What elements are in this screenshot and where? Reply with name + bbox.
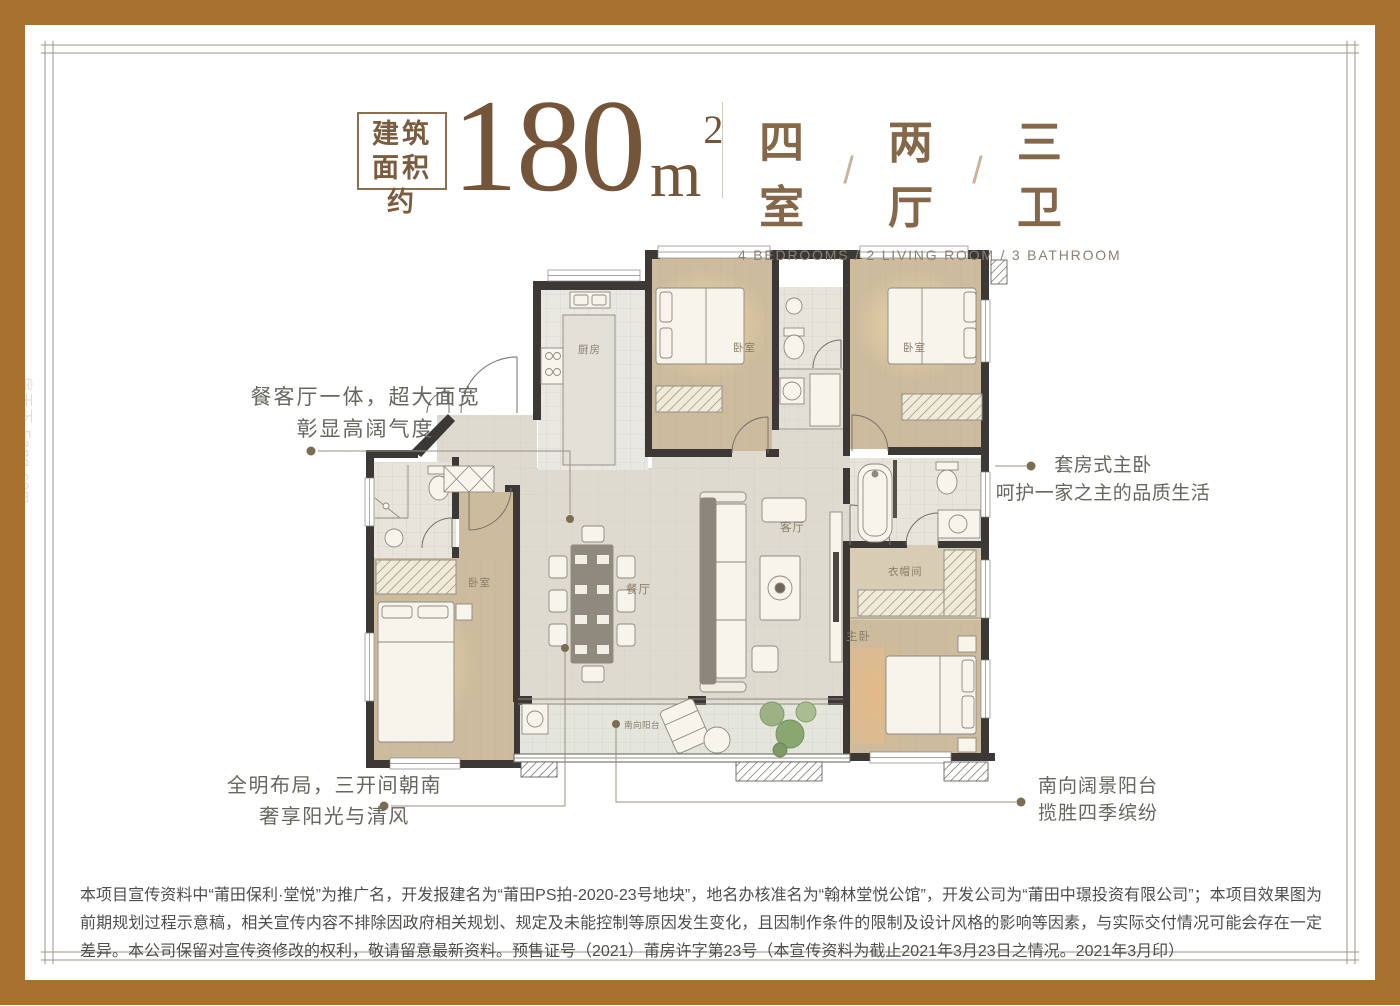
separator: / [830, 150, 867, 193]
annotation-line: 彰显高阔气度 [208, 414, 523, 446]
annotation-line: 呵护一家之主的品质生活 [993, 480, 1213, 508]
label-bedroom: 卧室 [733, 341, 756, 354]
label-master-bedroom: 主卧 [846, 630, 871, 643]
area-unit-sup: 2 [703, 110, 723, 150]
floorplan-drawing: 厨房 卧室 卧室 卧室 餐厅 客厅 衣帽间 主卧 南向阳台 [307, 246, 1036, 811]
annotation-line: 揽胜四季缤纷 [1038, 800, 1208, 827]
annotation-line: 套房式主卧 [993, 452, 1213, 480]
annotation-line: 南向阔景阳台 [1038, 773, 1208, 800]
room-summary-cn: 四室 / 两厅 / 三卫 [738, 106, 1088, 236]
room-summary-en: 4 BEDROOMS / 2 LIVING ROOM / 3 BATHROOM [738, 247, 1088, 263]
label-bedroom: 卧室 [903, 341, 926, 354]
annotation-layout: 全明布局，三开间朝南 奢享阳光与清风 [212, 771, 457, 833]
room-summary: 四室 / 两厅 / 三卫 4 BEDROOMS / 2 LIVING ROOM … [738, 106, 1088, 263]
label-cloakroom: 衣帽间 [888, 565, 923, 578]
annotation-line: 奢享阳光与清风 [212, 802, 457, 833]
label-kitchen: 厨房 [578, 343, 601, 356]
rooms-count: 四室 [738, 106, 830, 236]
area-tag-line1: 建筑 [359, 117, 445, 151]
label-bedroom: 卧室 [468, 576, 491, 589]
baths-count: 三卫 [996, 106, 1088, 236]
annotation-line: 全明布局，三开间朝南 [212, 771, 457, 802]
halls-count: 两厅 [867, 106, 959, 236]
area-unit: m [650, 149, 701, 202]
header-divider [722, 102, 723, 198]
annotation-dining: 餐客厅一体，超大面宽 彰显高阔气度 [208, 382, 523, 446]
annotation-master-suite: 套房式主卧 呵护一家之主的品质生活 [993, 452, 1213, 508]
annotation-balcony: 南向阔景阳台 揽胜四季缤纷 [1038, 773, 1208, 827]
bed-icon [888, 288, 982, 420]
area-value: 180 m 2 [452, 84, 723, 202]
label-living: 客厅 [780, 520, 805, 534]
area-tag-line2: 面积约 [359, 151, 445, 219]
area-number: 180 [452, 90, 644, 202]
disclaimer-text: 本项目宣传资料中“莆田保利·堂悦”为推广名，开发报建名为“莆田PS拍-2020-… [80, 882, 1322, 966]
annotation-line: 餐客厅一体，超大面宽 [208, 382, 523, 414]
label-balcony: 南向阳台 [624, 720, 660, 730]
closet-icon [444, 466, 494, 492]
separator: / [959, 150, 996, 193]
area-tag-box: 建筑 面积约 [357, 112, 447, 190]
label-dining: 餐厅 [626, 582, 651, 596]
